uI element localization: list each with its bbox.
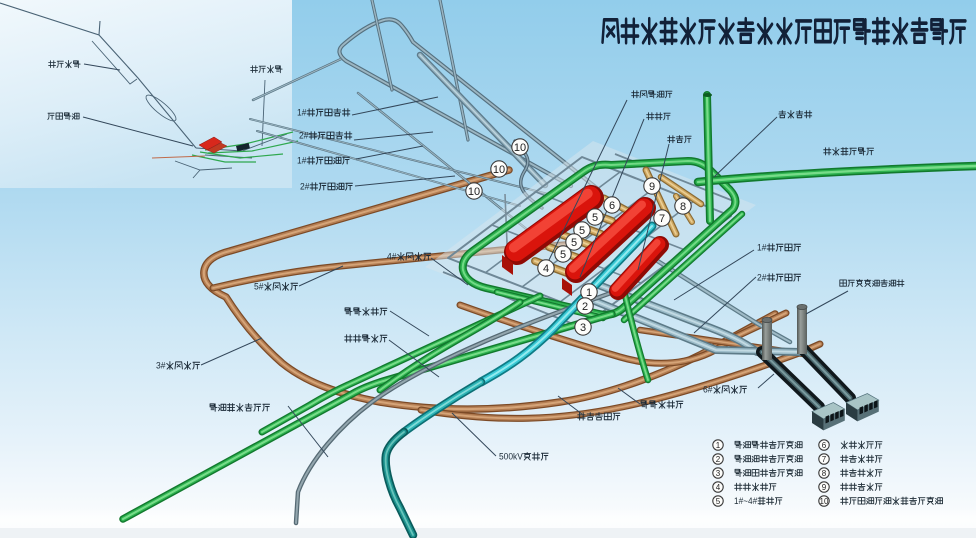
svg-text:9: 9 [822,483,827,492]
svg-text:1#: 1# [757,243,767,253]
svg-text:4: 4 [543,263,549,275]
svg-text:2#: 2# [757,273,767,283]
svg-text:1#: 1# [297,156,307,166]
svg-text:1: 1 [586,287,592,299]
svg-text:2: 2 [582,301,588,313]
svg-text:10: 10 [514,142,526,154]
svg-text:10: 10 [820,497,829,506]
svg-text:500kV: 500kV [499,452,523,462]
svg-text:6: 6 [609,200,615,212]
svg-text:2#: 2# [299,131,309,141]
svg-text:10: 10 [493,164,505,176]
svg-text:6: 6 [822,441,827,450]
svg-text:1#: 1# [297,108,307,118]
svg-text:1#~4#: 1#~4# [734,496,757,506]
svg-text:3#: 3# [156,361,166,371]
svg-text:10: 10 [468,186,480,198]
svg-text:5: 5 [571,237,577,249]
svg-text:5#: 5# [254,282,264,292]
svg-text:4: 4 [716,483,721,492]
svg-text:8: 8 [822,469,827,478]
svg-text:7: 7 [659,213,665,225]
svg-text:5: 5 [716,497,721,506]
svg-text:5: 5 [560,249,566,261]
svg-text:3: 3 [580,322,586,334]
svg-text:7: 7 [822,455,827,464]
svg-text:3: 3 [716,469,721,478]
svg-text:2#: 2# [300,182,310,192]
svg-text:8: 8 [680,201,686,213]
svg-text:1: 1 [716,441,721,450]
svg-text:2: 2 [716,455,721,464]
svg-text:5: 5 [592,212,598,224]
svg-text:5: 5 [579,225,585,237]
svg-text:6#: 6# [703,385,713,395]
svg-text:9: 9 [649,181,655,193]
svg-text:4#: 4# [387,252,397,262]
